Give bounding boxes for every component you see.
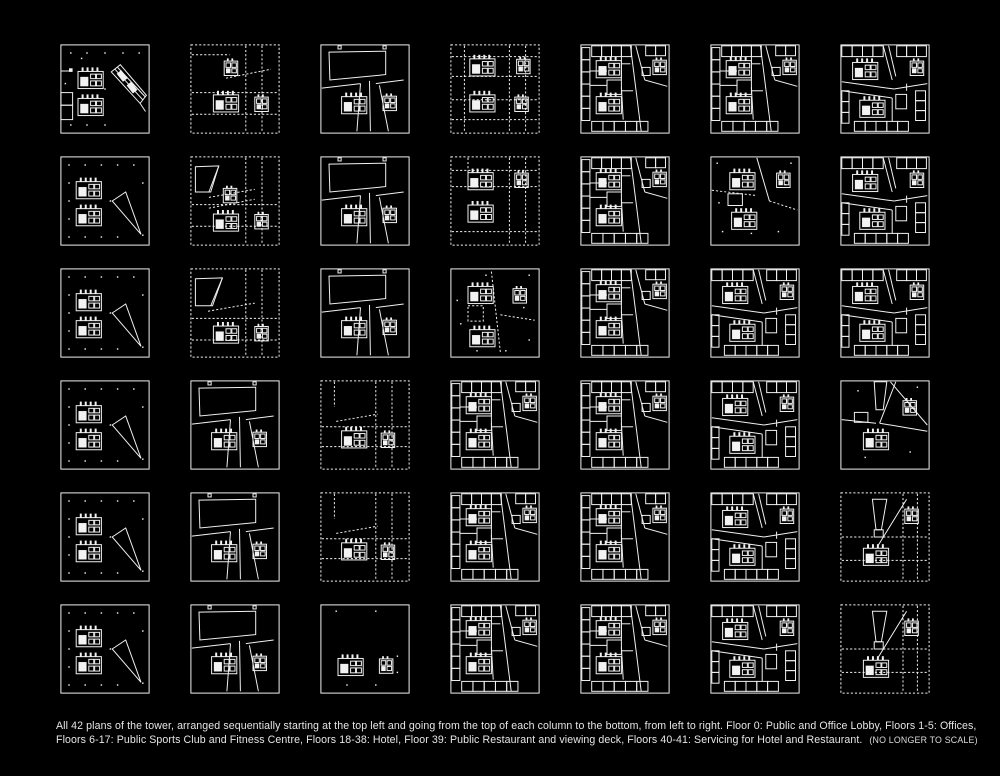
- floor-plan-drawing: [320, 44, 410, 134]
- floor-plan: [60, 156, 150, 246]
- floor-plan-drawing: [580, 268, 670, 358]
- floor-plan: [580, 268, 670, 358]
- floor-plan-drawing: [580, 604, 670, 694]
- floor-plan-drawing: [190, 604, 280, 694]
- floor-plan-drawing: [580, 380, 670, 470]
- floor-plan-drawing: [60, 44, 150, 134]
- floor-plan: [710, 156, 800, 246]
- floor-plan-drawing: [320, 492, 410, 582]
- floor-plan-drawing: [190, 492, 280, 582]
- floor-plan: [450, 156, 540, 246]
- floor-plan: [60, 268, 150, 358]
- floor-plan-drawing: [710, 268, 800, 358]
- floor-plan: [580, 380, 670, 470]
- floor-plan: [450, 380, 540, 470]
- caption: All 42 plans of the tower, arranged sequ…: [56, 719, 986, 747]
- floor-plan: [710, 492, 800, 582]
- floor-plan: [710, 380, 800, 470]
- floor-plan-drawing: [190, 268, 280, 358]
- floor-plan-drawing: [840, 156, 930, 246]
- floor-plan: [60, 380, 150, 470]
- floor-plan-drawing: [60, 380, 150, 470]
- floor-plan: [190, 44, 280, 134]
- floor-plan-drawing: [320, 156, 410, 246]
- floor-plan: [190, 492, 280, 582]
- floor-plan: [450, 44, 540, 134]
- floor-plan-drawing: [450, 604, 540, 694]
- floor-plan: [840, 268, 930, 358]
- floor-plan-drawing: [710, 44, 800, 134]
- floor-plan-drawing: [450, 44, 540, 134]
- floor-plan-drawing: [450, 380, 540, 470]
- floor-plan: [450, 492, 540, 582]
- floor-plan-drawing: [450, 268, 540, 358]
- floor-plan-drawing: [60, 604, 150, 694]
- floor-plan: [840, 380, 930, 470]
- floor-plan-drawing: [320, 604, 410, 694]
- floor-plan: [840, 492, 930, 582]
- caption-line1: All 42 plans of the tower, arranged sequ…: [56, 720, 976, 732]
- floor-plan-drawing: [60, 268, 150, 358]
- floor-plan: [840, 156, 930, 246]
- floor-plan-drawing: [840, 604, 930, 694]
- floor-plan: [840, 604, 930, 694]
- floor-plan: [450, 268, 540, 358]
- floor-plan: [320, 268, 410, 358]
- floor-plan: [710, 604, 800, 694]
- floor-plan: [320, 156, 410, 246]
- floor-plan-drawing: [580, 44, 670, 134]
- floor-plan: [710, 44, 800, 134]
- caption-line2: Floors 6-17: Public Sports Club and Fitn…: [56, 734, 862, 746]
- floor-plan: [320, 604, 410, 694]
- floor-plan: [60, 604, 150, 694]
- floor-plan: [320, 44, 410, 134]
- floor-plan-drawing: [840, 268, 930, 358]
- floor-plan-drawing: [190, 380, 280, 470]
- floor-plan: [190, 156, 280, 246]
- floor-plan: [190, 268, 280, 358]
- floor-plan-drawing: [710, 492, 800, 582]
- floor-plan-drawing: [840, 380, 930, 470]
- floor-plan-drawing: [320, 268, 410, 358]
- floor-plan-drawing: [580, 492, 670, 582]
- floor-plan: [60, 492, 150, 582]
- floor-plan-drawing: [710, 604, 800, 694]
- floor-plan-drawing: [60, 156, 150, 246]
- floor-plan-drawing: [710, 156, 800, 246]
- plans-grid: [60, 44, 930, 694]
- floor-plan: [580, 492, 670, 582]
- floor-plan-drawing: [450, 492, 540, 582]
- floor-plan: [580, 156, 670, 246]
- floor-plan-drawing: [190, 156, 280, 246]
- floor-plan: [320, 380, 410, 470]
- floor-plan: [840, 44, 930, 134]
- floor-plan: [710, 268, 800, 358]
- floor-plan: [190, 604, 280, 694]
- floor-plan: [60, 44, 150, 134]
- floor-plan: [320, 492, 410, 582]
- floor-plan-drawing: [60, 492, 150, 582]
- floor-plan: [580, 604, 670, 694]
- scale-note: (NO LONGER TO SCALE): [869, 735, 977, 745]
- floor-plan-drawing: [190, 44, 280, 134]
- floor-plan-drawing: [840, 44, 930, 134]
- floor-plan-drawing: [320, 380, 410, 470]
- floor-plan: [190, 380, 280, 470]
- floor-plan-drawing: [840, 492, 930, 582]
- floor-plan-drawing: [450, 156, 540, 246]
- floor-plan-drawing: [710, 380, 800, 470]
- floor-plan-drawing: [580, 156, 670, 246]
- floor-plan: [580, 44, 670, 134]
- floor-plan: [450, 604, 540, 694]
